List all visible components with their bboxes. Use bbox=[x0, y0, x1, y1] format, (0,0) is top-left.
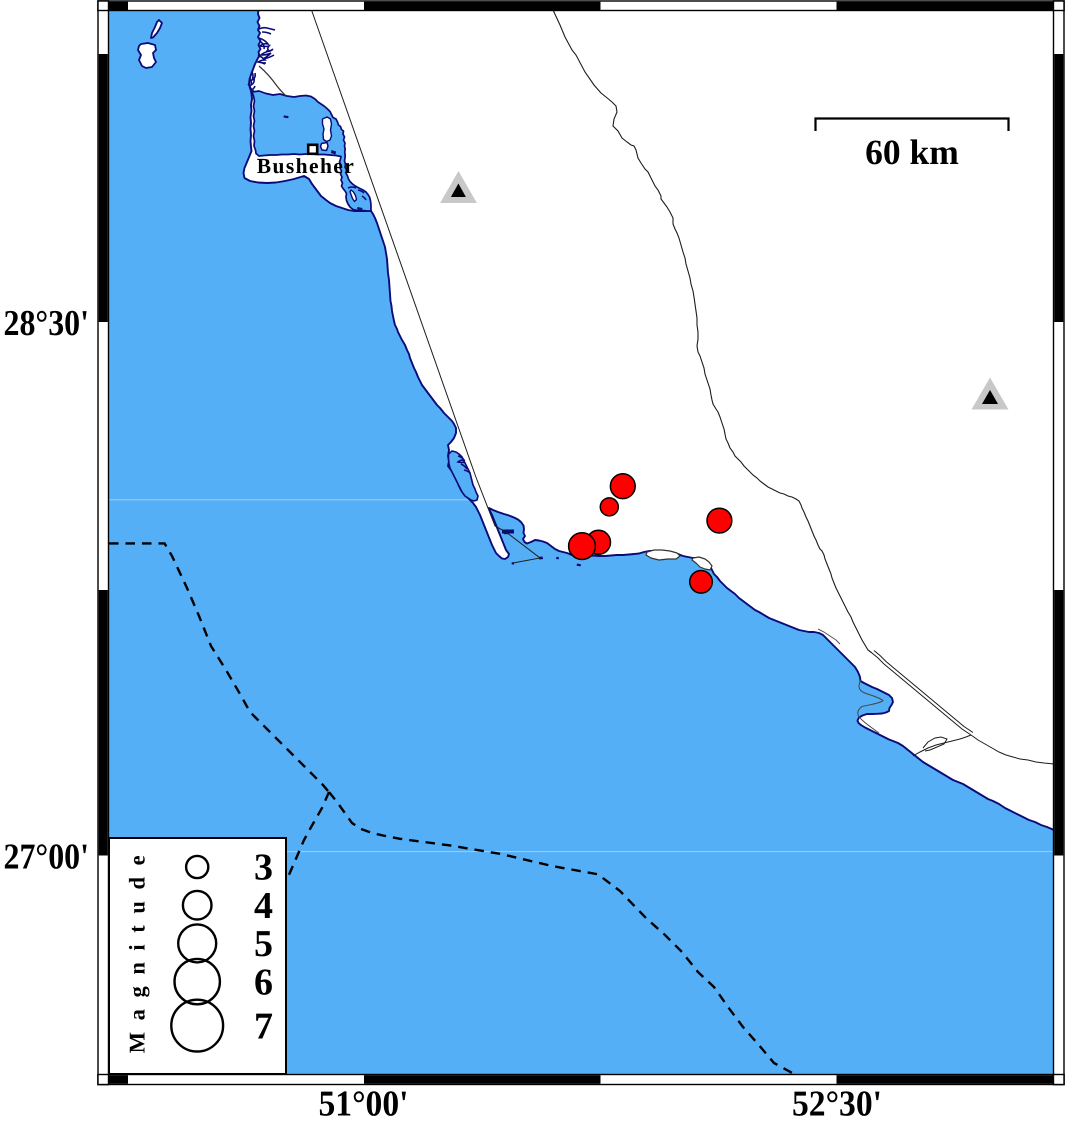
svg-text:52°30': 52°30' bbox=[792, 1083, 882, 1123]
svg-text:28°30': 28°30' bbox=[4, 302, 90, 343]
svg-text:6: 6 bbox=[254, 961, 273, 1003]
svg-text:3: 3 bbox=[254, 847, 273, 889]
svg-text:5: 5 bbox=[254, 923, 273, 965]
svg-text:27°00': 27°00' bbox=[4, 835, 90, 876]
svg-text:Magnitude: Magnitude bbox=[125, 844, 150, 1053]
svg-text:Busheher: Busheher bbox=[257, 154, 355, 178]
svg-text:4: 4 bbox=[254, 885, 273, 927]
svg-text:7: 7 bbox=[254, 1005, 273, 1047]
svg-text:51°00': 51°00' bbox=[319, 1083, 409, 1123]
svg-text:60 km: 60 km bbox=[865, 132, 959, 172]
